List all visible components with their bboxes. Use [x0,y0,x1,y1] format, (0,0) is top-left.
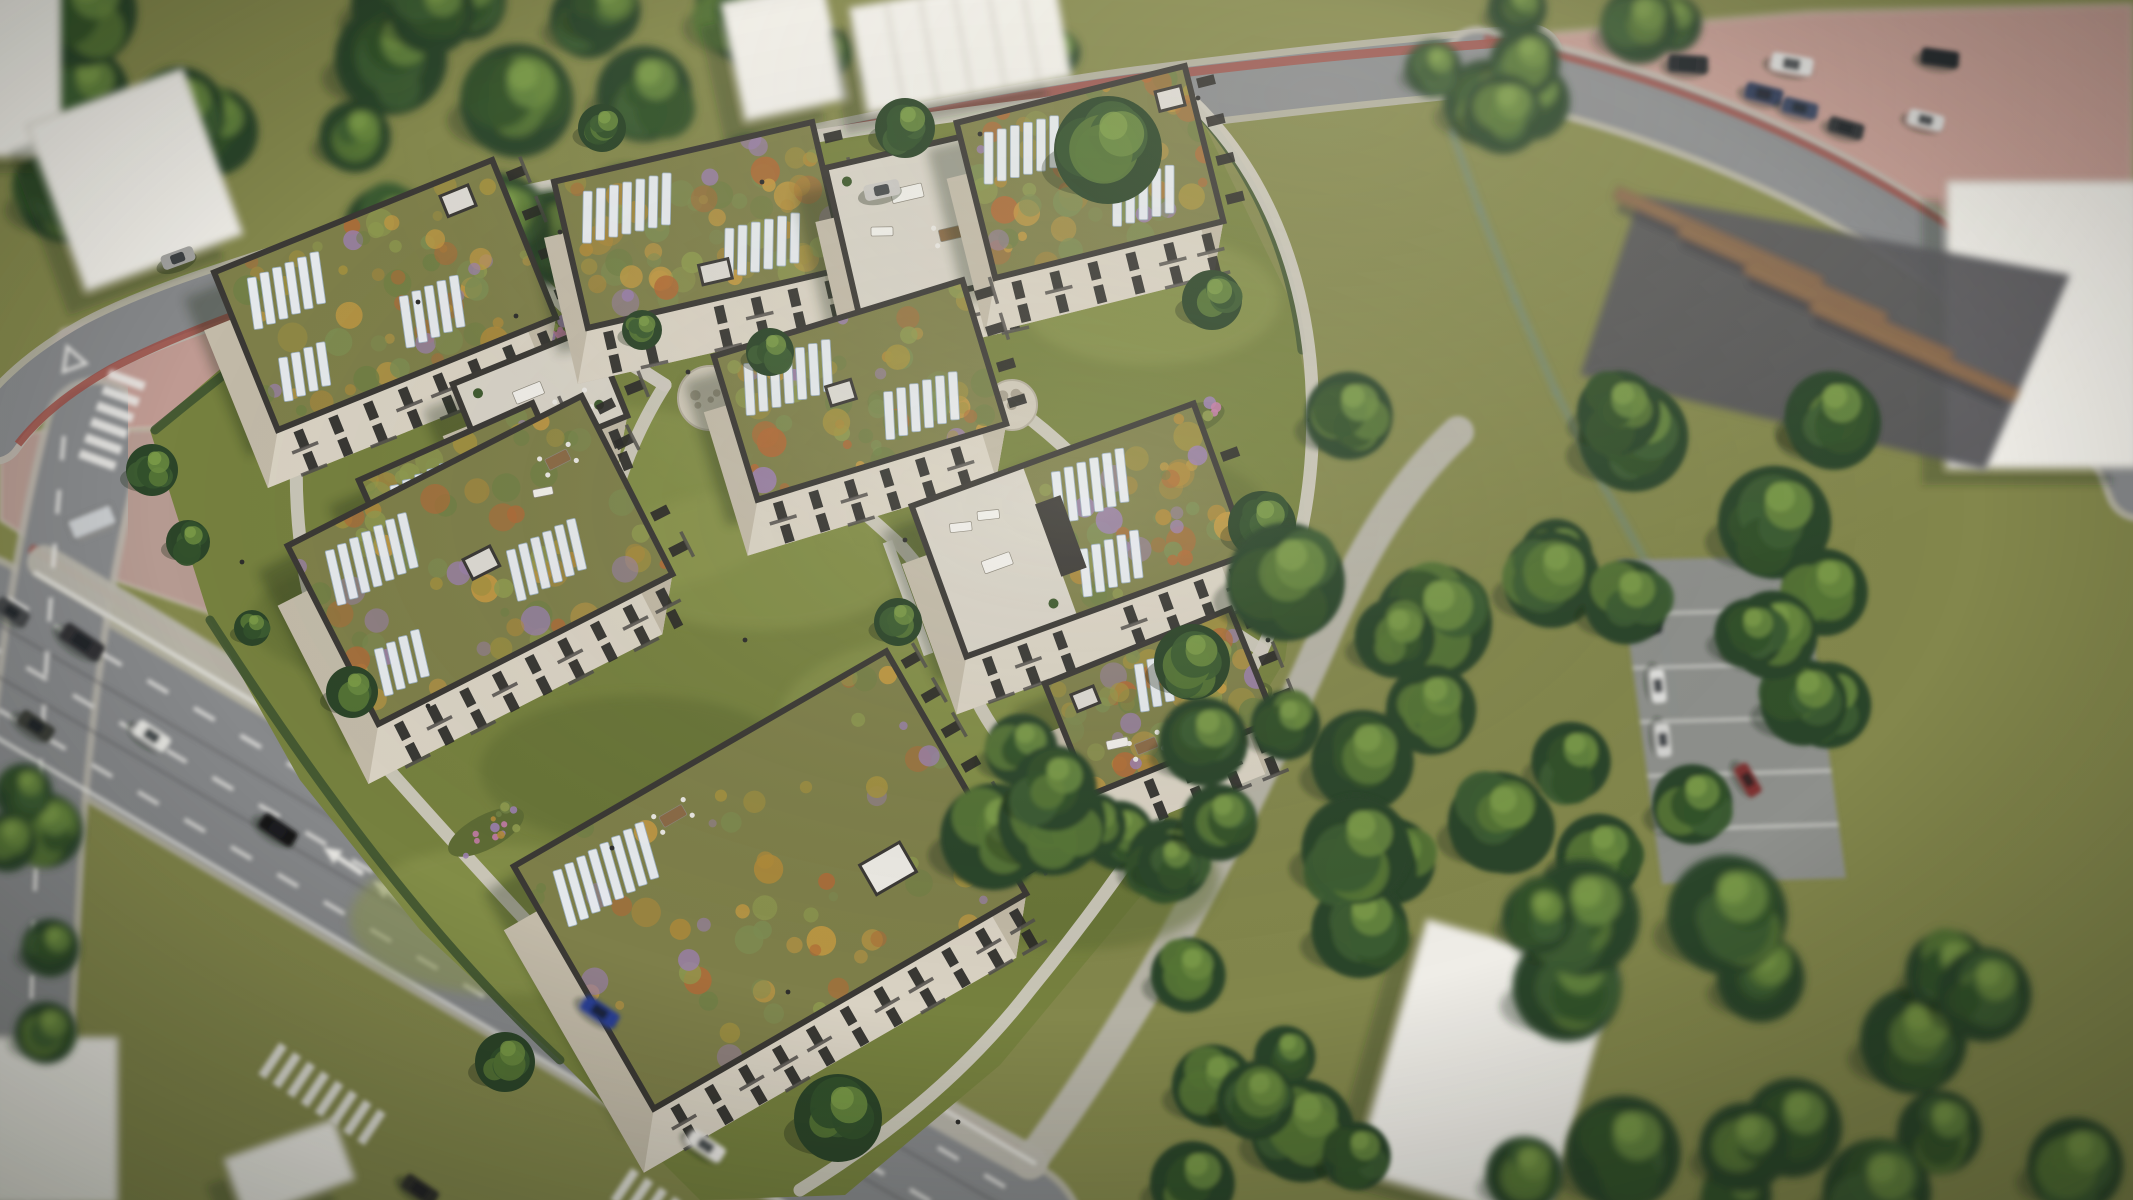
lamp-post [610,846,615,851]
solar-panel [1165,165,1174,213]
solar-panel [737,225,747,275]
lounge-chair [949,521,972,532]
tree-highlight [508,60,538,90]
lamp-post [240,560,245,565]
tree-highlight [1186,635,1206,655]
solar-panel [661,173,671,225]
context-building-roof [0,1038,117,1200]
tree-highlight [1213,795,1233,815]
tree-highlight [500,1041,516,1057]
aerial-site-rendering [0,0,2133,1200]
scene-container [0,0,2133,1200]
lamp-post [426,704,431,709]
tree-highlight [348,674,362,688]
lamp-post [786,990,791,995]
tree-highlight [1342,385,1365,408]
tree-highlight [1977,961,2002,986]
tree-highlight [1737,1116,1760,1139]
tree-highlight [148,452,162,466]
fence-post [1450,130,1454,134]
tree-highlight [1532,892,1551,911]
tree-highlight [1518,1148,1538,1168]
tree-highlight [1016,724,1035,743]
lamp-post [743,638,748,643]
lamp-post [558,230,563,235]
solar-panel [984,132,993,184]
tree-highlight [1718,872,1749,903]
tree-highlight [1388,609,1409,630]
lamp-post [978,132,983,137]
tree-highlight [900,107,916,123]
solar-panel [596,188,606,240]
solar-panel [648,176,658,228]
tree-highlight [1047,758,1069,780]
tree-highlight [1744,609,1762,627]
car-windshield [1652,678,1663,693]
tree-highlight [1817,561,1840,584]
tree-highlight [1620,572,1642,594]
tree-highlight [1207,279,1223,295]
fence-post [1554,390,1558,394]
solar-panel [609,185,619,237]
tree-highlight [1612,383,1634,405]
roof-bulkhead [1155,86,1185,112]
tree-highlight [41,1011,57,1027]
lamp-post [760,180,765,185]
tree-highlight [1186,1153,1208,1175]
tree-highlight [1280,701,1298,719]
solar-panel [777,216,787,266]
tree-highlight [1565,733,1586,754]
tree-highlight [1797,671,1820,694]
lounge-chair [977,509,1000,520]
tree-highlight [1932,1102,1954,1124]
tree-highlight [1784,1092,1810,1118]
tree-highlight [1497,85,1518,106]
solar-panel [1023,122,1032,174]
solar-panel [764,219,774,269]
tree-highlight [349,111,368,130]
context-building [0,1038,117,1200]
tree-highlight [1519,38,1537,56]
tree-highlight [639,316,649,326]
tree-highlight [2,821,17,836]
tree-highlight [19,772,34,787]
fence-post [1514,298,1518,302]
tree-highlight [1347,811,1375,839]
tree-highlight [1280,1034,1296,1050]
car-windshield [1931,51,1948,64]
tree-highlight [1351,1132,1369,1150]
tree-highlight [1196,710,1219,733]
tree-highlight [1207,1057,1228,1078]
tree-highlight [249,615,258,624]
tree-highlight [1765,482,1794,511]
solar-panel [635,179,645,231]
tree-highlight [894,605,906,617]
tree-highlight [1868,1155,1896,1183]
car-windshield [1679,58,1697,71]
lamp-post [956,1120,961,1125]
solar-panel [1010,126,1019,178]
lamp-post [903,538,908,543]
tree-highlight [598,111,610,123]
solar-panel [750,222,760,272]
solar-panel [582,191,592,243]
tree-highlight [1424,678,1447,701]
tree-highlight [1257,501,1275,519]
lamp-post [1196,96,1201,101]
tree-highlight [1294,1094,1321,1121]
tree-highlight [636,60,661,85]
car-windshield [1657,732,1668,747]
fence-post [1478,208,1482,212]
tree-highlight [2068,1131,2093,1156]
tree-highlight [831,1087,854,1110]
tree-highlight [46,927,61,942]
tree-highlight [1354,725,1381,752]
lounge-chair [871,227,893,236]
fence-post [1602,484,1606,488]
solar-panel [997,129,1006,181]
solar-panel [622,182,632,234]
tree-foliage [1947,983,1981,1017]
solar-panel [790,213,800,263]
lamp-post [416,300,421,305]
tree-highlight [1276,540,1307,571]
tree-highlight [766,335,778,347]
tree-highlight [1490,787,1516,813]
tree-highlight [1182,949,1201,968]
tree-highlight [1099,112,1127,140]
tree-highlight [184,526,195,537]
tree-highlight [1592,826,1614,848]
tree-highlight [1686,776,1707,797]
tree-highlight [1249,1073,1269,1093]
lamp-post [686,370,691,375]
tree-highlight [1424,581,1455,612]
tree-highlight [1572,876,1602,906]
tree-highlight [1544,545,1569,570]
lamp-post [514,314,519,319]
tree-highlight [1823,384,1847,408]
tree-highlight [1614,1112,1644,1142]
tree-highlight [1429,49,1444,64]
